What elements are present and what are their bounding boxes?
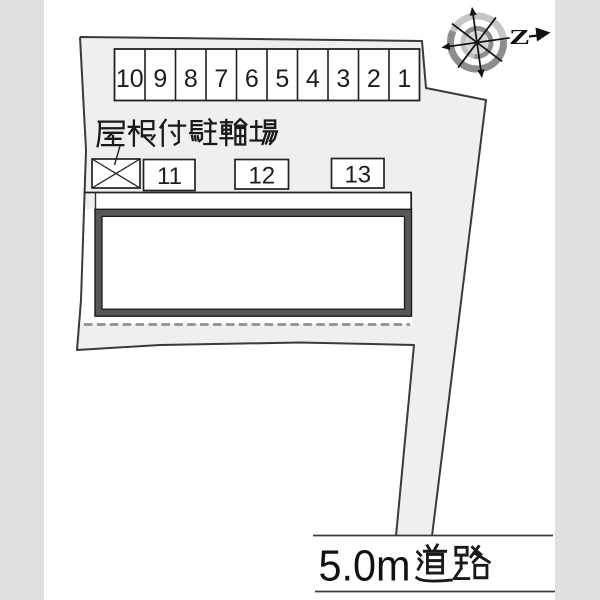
svg-text:9: 9 xyxy=(153,65,167,93)
svg-text:5: 5 xyxy=(275,65,289,93)
svg-text:8: 8 xyxy=(184,65,198,93)
svg-text:6: 6 xyxy=(245,65,259,93)
svg-text:1: 1 xyxy=(397,65,411,93)
svg-text:4: 4 xyxy=(306,65,320,93)
svg-text:7: 7 xyxy=(214,65,228,93)
svg-text:13: 13 xyxy=(344,162,371,189)
svg-text:2: 2 xyxy=(367,65,381,93)
svg-text:10: 10 xyxy=(116,65,144,93)
svg-text:5.0m: 5.0m xyxy=(319,542,411,591)
svg-text:Z: Z xyxy=(509,25,530,49)
svg-text:12: 12 xyxy=(248,163,275,190)
svg-text:3: 3 xyxy=(336,65,350,93)
svg-text:11: 11 xyxy=(157,163,182,190)
